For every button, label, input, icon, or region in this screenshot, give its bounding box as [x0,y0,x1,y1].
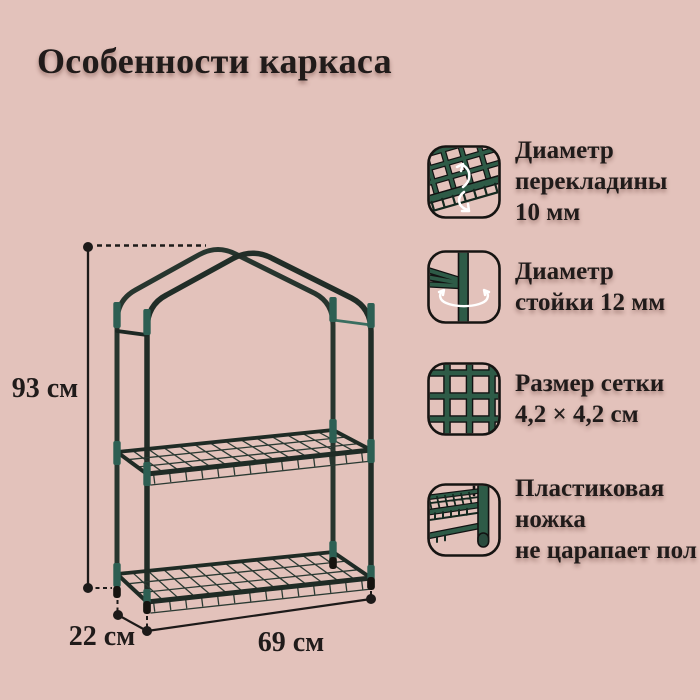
feature-text-line: Диаметр [515,135,667,166]
crossbar-diameter-icon [427,145,501,219]
feature-text: Диаметр перекладины 10 мм [515,135,667,228]
feature-text-line: ножка [515,504,697,535]
depth-dimension-label: 22 см [69,621,136,652]
height-dimension-label: 93 см [12,373,79,404]
frame-diagram: 93 см 22 см 69 см [0,0,700,700]
feature-item-crossbar: Диаметр перекладины 10 мм [427,135,667,228]
feature-text: Размер сетки 4,2 × 4,2 см [515,368,664,430]
feature-text-line: 4,2 × 4,2 см [515,399,664,430]
feature-text: Пластиковая ножка не царапает пол [515,473,697,566]
feature-text-line: перекладины [515,166,667,197]
feature-text: Диаметр стойки 12 мм [515,256,665,318]
feature-item-foot: Пластиковая ножка не царапает пол [427,473,697,566]
feature-text-line: Размер сетки [515,368,664,399]
feature-text-line: 10 мм [515,197,667,228]
mesh-size-icon [427,362,501,436]
feature-text-line: не царапает пол [515,535,697,566]
feature-text-line: Диаметр [515,256,665,287]
feature-item-post: Диаметр стойки 12 мм [427,250,665,324]
plastic-feet [113,557,375,614]
post-diameter-icon [427,250,501,324]
feature-item-mesh: Размер сетки 4,2 × 4,2 см [427,362,664,436]
infographic-page: Особенности каркаса [0,0,700,700]
feature-text-line: Пластиковая [515,473,697,504]
plastic-foot-icon [427,483,501,557]
width-dimension-label: 69 см [258,627,325,658]
feature-text-line: стойки 12 мм [515,287,665,318]
